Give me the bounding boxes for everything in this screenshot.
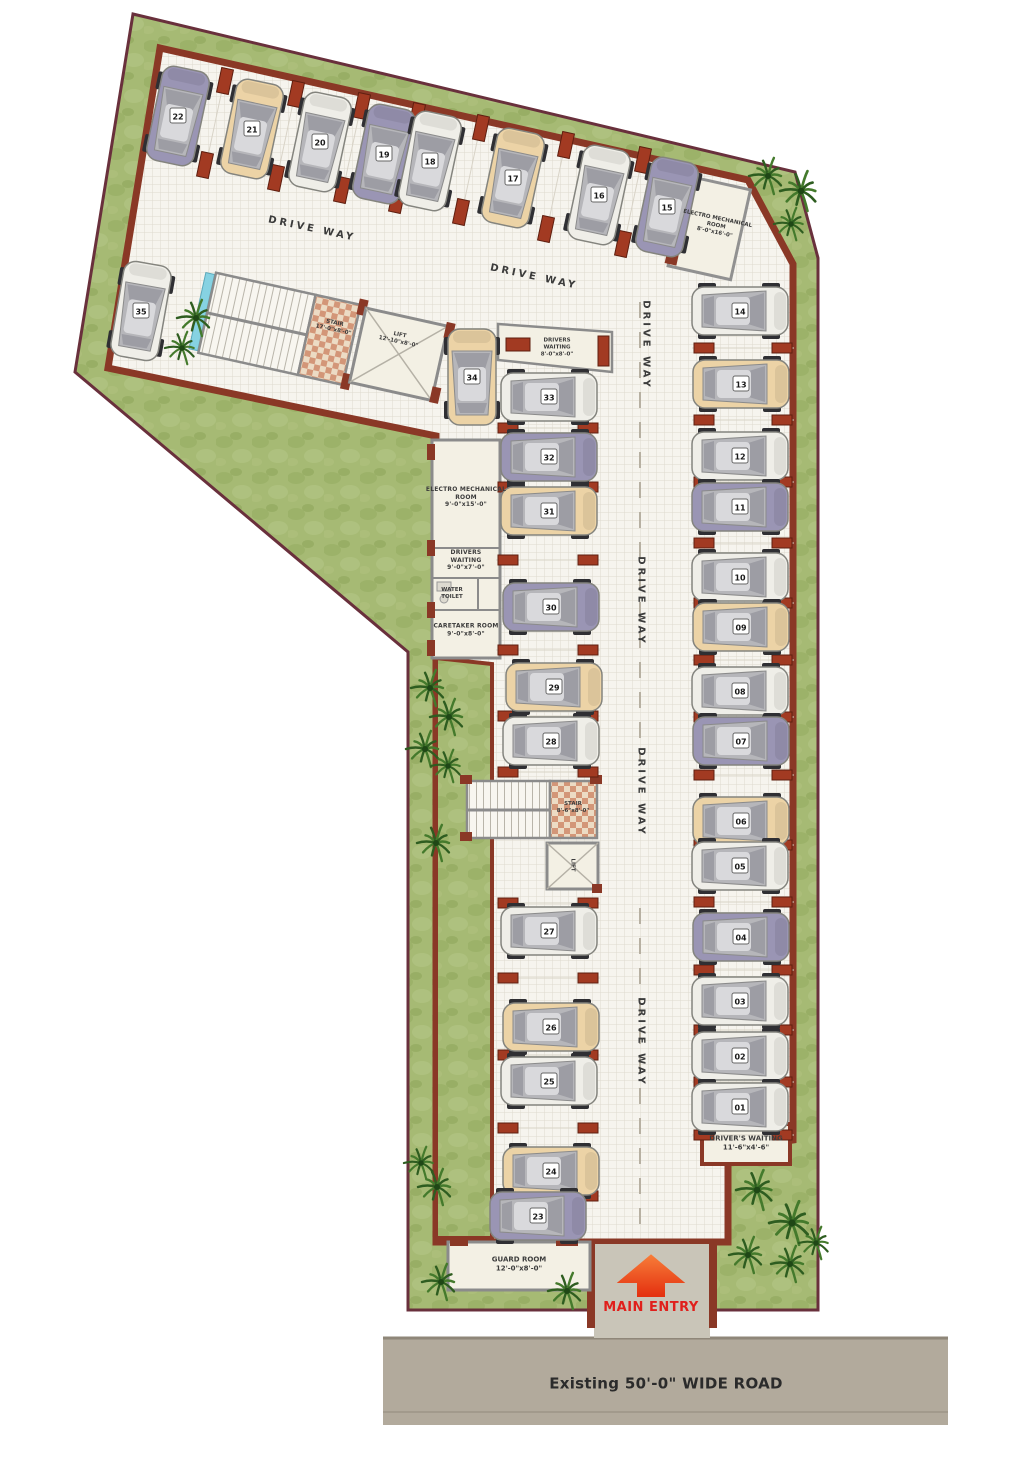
car-number-badge: 32 <box>541 449 557 464</box>
svg-text:24: 24 <box>545 1168 557 1177</box>
left-rooms-block <box>427 440 500 658</box>
car-02: 02 <box>692 1028 788 1084</box>
stall-divider-brick <box>694 415 714 425</box>
svg-text:16: 16 <box>593 192 605 201</box>
stall-divider-brick <box>578 1123 598 1133</box>
car-number-badge: 05 <box>732 858 748 873</box>
stall-divider-brick <box>578 555 598 565</box>
plan-drawing: 2221201918171615353433323130292827262524… <box>0 0 1033 1461</box>
car-number-badge: 31 <box>541 503 557 518</box>
svg-text:02: 02 <box>734 1053 745 1062</box>
driveway-label: DRIVE WAY <box>636 556 647 645</box>
car-10: 10 <box>692 549 788 605</box>
stall-divider-brick <box>498 555 518 565</box>
parking-floor-plan: 2221201918171615353433323130292827262524… <box>0 0 1033 1461</box>
stall-divider-brick <box>694 538 714 548</box>
car-number-badge: 17 <box>505 170 521 185</box>
road <box>383 1337 948 1425</box>
svg-text:34: 34 <box>466 374 478 383</box>
car-03: 03 <box>692 973 788 1029</box>
stall-divider-brick <box>772 343 792 353</box>
car-number-badge: 20 <box>312 134 328 149</box>
toilet-fixture <box>437 582 451 591</box>
car-number-badge: 21 <box>244 121 260 136</box>
car-number-badge: 22 <box>170 108 186 123</box>
svg-text:13: 13 <box>735 381 746 390</box>
car-08: 08 <box>692 663 788 719</box>
car-09: 09 <box>693 599 789 655</box>
svg-text:35: 35 <box>135 308 147 317</box>
car-number-badge: 23 <box>530 1208 546 1223</box>
car-number-badge: 02 <box>732 1048 748 1063</box>
car-number-badge: 03 <box>732 993 748 1008</box>
car-31: 31 <box>501 483 597 539</box>
car-04: 04 <box>693 909 789 965</box>
car-14: 14 <box>692 283 788 339</box>
stair-landing-mid <box>550 781 597 838</box>
svg-text:04: 04 <box>735 934 747 943</box>
car-29: 29 <box>506 659 602 715</box>
stall-divider-brick <box>498 645 518 655</box>
car-34: 34 <box>444 329 500 425</box>
car-number-badge: 26 <box>543 1019 559 1034</box>
svg-text:23: 23 <box>532 1213 543 1222</box>
car-32: 32 <box>501 429 597 485</box>
svg-text:03: 03 <box>734 998 745 1007</box>
car-number-badge: 30 <box>543 599 559 614</box>
car-number-badge: 27 <box>541 923 557 938</box>
driveway-label: DRIVE WAY <box>641 300 652 389</box>
svg-text:33: 33 <box>543 394 554 403</box>
car-number-badge: 34 <box>464 369 480 384</box>
car-number-badge: 06 <box>733 813 749 828</box>
svg-text:05: 05 <box>734 863 746 872</box>
car-number-badge: 13 <box>733 376 749 391</box>
svg-text:10: 10 <box>734 574 746 583</box>
car-number-badge: 19 <box>376 146 392 161</box>
svg-text:14: 14 <box>734 308 746 317</box>
svg-text:21: 21 <box>246 126 258 135</box>
stall-divider-brick <box>772 770 792 780</box>
svg-text:26: 26 <box>545 1024 557 1033</box>
svg-text:32: 32 <box>543 454 554 463</box>
car-number-badge: 29 <box>546 679 562 694</box>
svg-text:27: 27 <box>543 928 554 937</box>
car-number-badge: 01 <box>732 1099 748 1114</box>
driveway-label: DRIVE WAY <box>636 997 647 1086</box>
car-28: 28 <box>503 713 599 769</box>
driveway-label: DRIVE WAY <box>636 747 647 836</box>
svg-text:31: 31 <box>543 508 555 517</box>
svg-text:29: 29 <box>548 684 560 693</box>
car-23: 23 <box>490 1188 586 1244</box>
car-27: 27 <box>501 903 597 959</box>
svg-text:08: 08 <box>734 688 746 697</box>
svg-text:07: 07 <box>735 738 746 747</box>
stall-divider-brick <box>498 1123 518 1133</box>
car-number-badge: 08 <box>732 683 748 698</box>
svg-text:30: 30 <box>545 604 557 613</box>
stall-divider-brick <box>772 415 792 425</box>
car-number-badge: 35 <box>133 303 149 318</box>
svg-text:20: 20 <box>314 139 326 148</box>
stall-divider-brick <box>498 973 518 983</box>
car-number-badge: 07 <box>733 733 749 748</box>
car-number-badge: 09 <box>733 619 749 634</box>
car-number-badge: 33 <box>541 389 557 404</box>
car-24: 24 <box>503 1143 599 1199</box>
car-number-badge: 11 <box>732 499 748 514</box>
car-26: 26 <box>503 999 599 1055</box>
svg-text:19: 19 <box>378 151 390 160</box>
car-07: 07 <box>693 713 789 769</box>
stall-divider-brick <box>694 897 714 907</box>
stall-divider-brick <box>578 645 598 655</box>
svg-text:25: 25 <box>543 1078 555 1087</box>
car-33: 33 <box>501 369 597 425</box>
svg-text:11: 11 <box>734 504 746 513</box>
svg-text:01: 01 <box>734 1104 746 1113</box>
stall-divider-brick <box>694 770 714 780</box>
svg-text:06: 06 <box>735 818 747 827</box>
svg-text:15: 15 <box>661 204 673 213</box>
stall-divider-brick <box>694 343 714 353</box>
car-number-badge: 25 <box>541 1073 557 1088</box>
car-number-badge: 15 <box>659 199 675 214</box>
car-number-badge: 12 <box>732 448 748 463</box>
main-entry <box>587 1244 717 1338</box>
sink-fixture <box>440 595 448 603</box>
car-number-badge: 14 <box>732 303 748 318</box>
car-number-badge: 18 <box>422 153 438 168</box>
car-12: 12 <box>692 428 788 484</box>
grass-pocket <box>436 658 492 1238</box>
car-number-badge: 10 <box>732 569 748 584</box>
car-number-badge: 24 <box>543 1163 559 1178</box>
car-25: 25 <box>501 1053 597 1109</box>
svg-text:18: 18 <box>424 158 436 167</box>
stall-divider-brick <box>578 973 598 983</box>
svg-text:12: 12 <box>734 453 745 462</box>
car-number-badge: 28 <box>543 733 559 748</box>
svg-text:28: 28 <box>545 738 557 747</box>
car-number-badge: 16 <box>591 187 607 202</box>
svg-text:09: 09 <box>735 624 747 633</box>
stall-divider-brick <box>772 897 792 907</box>
car-01: 01 <box>692 1079 788 1135</box>
stall-divider-brick <box>772 538 792 548</box>
car-30: 30 <box>503 579 599 635</box>
svg-text:22: 22 <box>172 113 183 122</box>
car-11: 11 <box>692 479 788 535</box>
car-05: 05 <box>692 838 788 894</box>
svg-text:17: 17 <box>507 175 518 184</box>
car-13: 13 <box>693 356 789 412</box>
car-number-badge: 04 <box>733 929 749 944</box>
